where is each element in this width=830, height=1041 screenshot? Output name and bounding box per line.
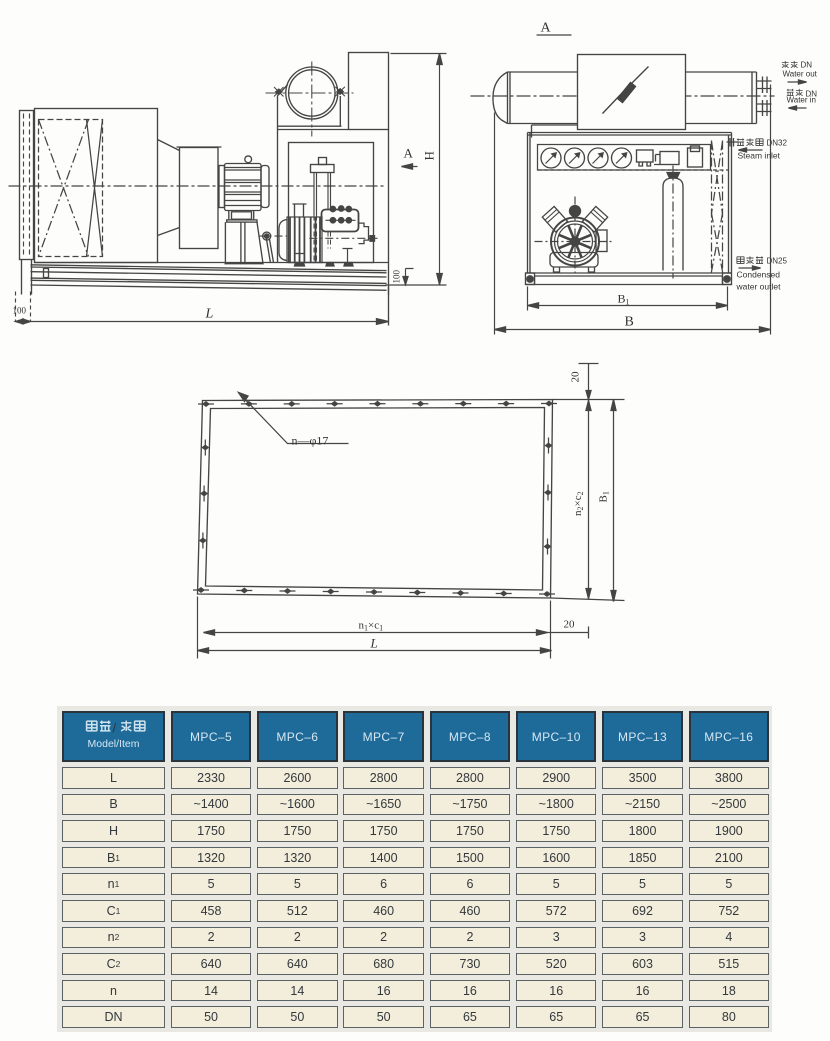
svg-text:n1×c1: n1×c1 <box>359 620 384 633</box>
svg-text:100: 100 <box>13 306 27 316</box>
svg-text:B1: B1 <box>598 491 611 502</box>
svg-text:L: L <box>370 636 378 651</box>
svg-text:Steam inlet: Steam inlet <box>738 151 781 161</box>
svg-text:DN: DN <box>806 90 818 99</box>
svg-text:20: 20 <box>570 371 582 383</box>
svg-text:n—φ17: n—φ17 <box>292 434 329 448</box>
svg-text:20: 20 <box>564 619 576 631</box>
svg-text:100: 100 <box>392 270 402 284</box>
svg-text:Condensed: Condensed <box>737 270 781 280</box>
svg-text:A: A <box>404 146 414 161</box>
svg-text:DN25: DN25 <box>767 257 788 266</box>
svg-text:H: H <box>422 151 437 160</box>
svg-text:L: L <box>205 307 214 322</box>
svg-text:Water in: Water in <box>787 96 817 105</box>
svg-text:n2×c2: n2×c2 <box>572 491 585 516</box>
svg-text:Water out: Water out <box>783 70 818 79</box>
svg-text:DN32: DN32 <box>767 139 788 148</box>
svg-text:water outlet: water outlet <box>736 282 782 292</box>
svg-text:A: A <box>541 21 552 36</box>
svg-text:B1: B1 <box>618 292 630 307</box>
svg-text:DN: DN <box>801 61 813 70</box>
svg-text:B: B <box>625 315 634 330</box>
